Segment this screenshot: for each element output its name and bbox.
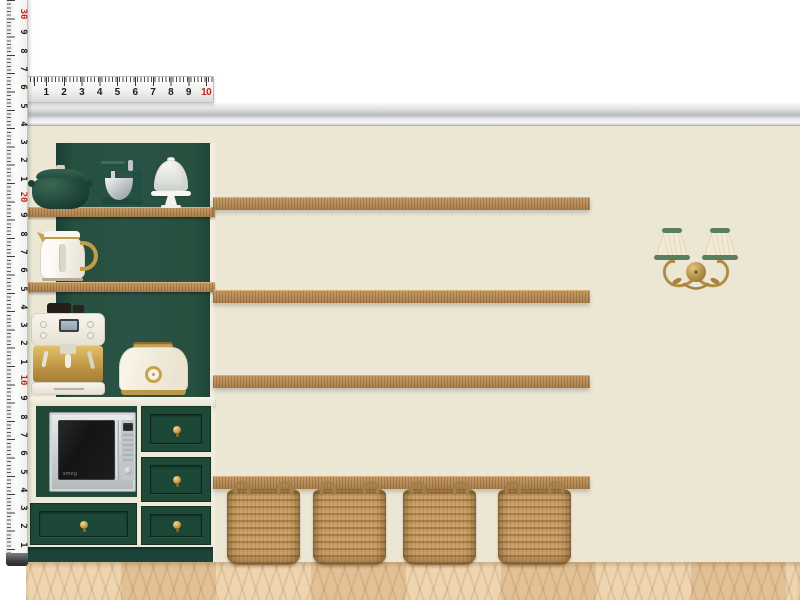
storage-basket[interactable]: [313, 489, 386, 565]
espresso-dial: [40, 321, 47, 328]
microwave-window: smeg: [58, 420, 115, 480]
storage-basket[interactable]: [498, 489, 571, 565]
cake-dome: [154, 160, 188, 191]
moodboard-canvas: smeg: [0, 0, 800, 600]
ruler-number: 5: [115, 87, 120, 98]
drawer[interactable]: [141, 506, 211, 545]
ruler-number: 7: [150, 87, 155, 98]
ruler-number: 6: [132, 87, 137, 98]
tape-measure-end[interactable]: [6, 553, 28, 566]
toaster-dial: [145, 366, 162, 383]
wall-shelf[interactable]: [213, 197, 590, 210]
wall-shelf[interactable]: [213, 290, 590, 303]
tape-number: 20: [16, 191, 28, 203]
ruler-number: 3: [79, 87, 84, 98]
tape-number: 5: [16, 466, 28, 478]
toaster[interactable]: [119, 340, 188, 397]
storage-basket[interactable]: [227, 489, 300, 565]
shade-trim-top-left: [662, 228, 682, 233]
microwave-handle: [116, 420, 119, 480]
tape-number: 1: [16, 539, 28, 551]
wall-shelf[interactable]: [213, 476, 590, 489]
drip-tray: [31, 382, 105, 395]
tape-number: 2: [16, 154, 28, 166]
brass-knob[interactable]: [80, 521, 88, 529]
cabinet-shelf[interactable]: [20, 282, 215, 292]
tape-number: 30: [16, 8, 28, 20]
toe-kick: [27, 547, 213, 562]
tape-number: 6: [16, 81, 28, 93]
tape-number: 1: [16, 356, 28, 368]
cake-stand-foot: [161, 205, 181, 208]
tape-number: 3: [16, 502, 28, 514]
vertical-tape-measure[interactable]: 309876543212098765432110987654321: [6, 0, 28, 553]
tape-number: 7: [16, 63, 28, 75]
tape-number: 4: [16, 301, 28, 313]
mixer-highlight: [101, 161, 125, 164]
tape-number: 1: [16, 173, 28, 185]
espresso-button: [87, 321, 94, 328]
tape-number: 9: [16, 26, 28, 38]
kettle-water-window: [59, 244, 66, 272]
espresso-button: [87, 332, 94, 339]
stand-mixer[interactable]: [95, 150, 149, 208]
ruler-number: 9: [186, 87, 191, 98]
tape-number: 2: [16, 520, 28, 532]
portafilter-handle: [65, 354, 71, 368]
drawer[interactable]: [141, 457, 211, 502]
shade-trim-bottom-left: [654, 255, 690, 260]
mixer-attachment: [111, 171, 115, 178]
cake-plate: [151, 191, 191, 196]
microwave-dial: [124, 467, 132, 475]
microwave-keypad: [123, 434, 133, 464]
espresso-machine[interactable]: [31, 303, 108, 399]
tape-number: 10: [16, 374, 28, 386]
ruler-number: 1: [43, 87, 48, 98]
tape-number: 7: [16, 246, 28, 258]
tape-number: 7: [16, 429, 28, 441]
crown-molding: [22, 103, 800, 126]
espresso-head-housing: [31, 313, 105, 346]
tape-number: 5: [16, 100, 28, 112]
tape-number: 3: [16, 319, 28, 331]
kettle-base: [42, 278, 83, 281]
espresso-dial: [40, 332, 47, 339]
tape-number: 8: [16, 45, 28, 57]
shade-trim-top-right: [710, 228, 730, 233]
tape-number: 2: [16, 337, 28, 349]
double-wall-sconce[interactable]: [644, 224, 748, 300]
kettle[interactable]: [40, 227, 98, 282]
espresso-lcd: [59, 319, 79, 332]
brass-knob[interactable]: [173, 476, 181, 484]
shade-trim-bottom-right: [702, 255, 738, 260]
ruler-number: 10: [201, 87, 211, 98]
toaster-base: [121, 390, 186, 395]
ruler-number: 4: [97, 87, 102, 98]
microwave-display: [123, 423, 133, 431]
tape-number: 3: [16, 136, 28, 148]
microwave-brand-label: smeg: [63, 471, 77, 477]
dutch-oven[interactable]: [32, 165, 89, 209]
tape-number: 9: [16, 392, 28, 404]
dutch-oven-body: [32, 178, 89, 209]
tape-number: 6: [16, 447, 28, 459]
tape-number: 9: [16, 209, 28, 221]
wall-shelf[interactable]: [213, 375, 590, 388]
drawer[interactable]: [30, 503, 137, 545]
chevron-wood-floor: [26, 562, 800, 600]
drawer[interactable]: [141, 406, 211, 452]
ruler-number: 2: [61, 87, 66, 98]
kettle-lid: [44, 231, 80, 239]
group-head: [60, 344, 76, 354]
tape-number: 4: [16, 484, 28, 496]
built-in-microwave[interactable]: smeg: [49, 412, 136, 492]
grinder-cap: [73, 305, 84, 313]
brass-knob[interactable]: [173, 426, 181, 434]
lower-cabinet[interactable]: smeg: [23, 406, 213, 547]
storage-basket[interactable]: [403, 489, 476, 565]
ruler-number: 8: [168, 87, 173, 98]
horizontal-steel-ruler[interactable]: 12345678910: [22, 76, 214, 103]
kettle-handle: [80, 241, 98, 271]
brass-knob[interactable]: [173, 521, 181, 529]
sconce-screw: [694, 270, 697, 273]
mixer-head: [98, 159, 143, 172]
cake-stand[interactable]: [151, 157, 191, 208]
tape-number: 6: [16, 264, 28, 276]
microwave-control-panel: [121, 420, 134, 480]
tape-number: 8: [16, 411, 28, 423]
bean-hopper: [47, 303, 71, 313]
tape-number: 5: [16, 283, 28, 295]
mixer-bowl: [105, 178, 133, 200]
mixer-hinge: [128, 160, 133, 171]
cake-stand-stem: [165, 196, 177, 205]
tape-number: 4: [16, 118, 28, 130]
tape-number: 8: [16, 228, 28, 240]
